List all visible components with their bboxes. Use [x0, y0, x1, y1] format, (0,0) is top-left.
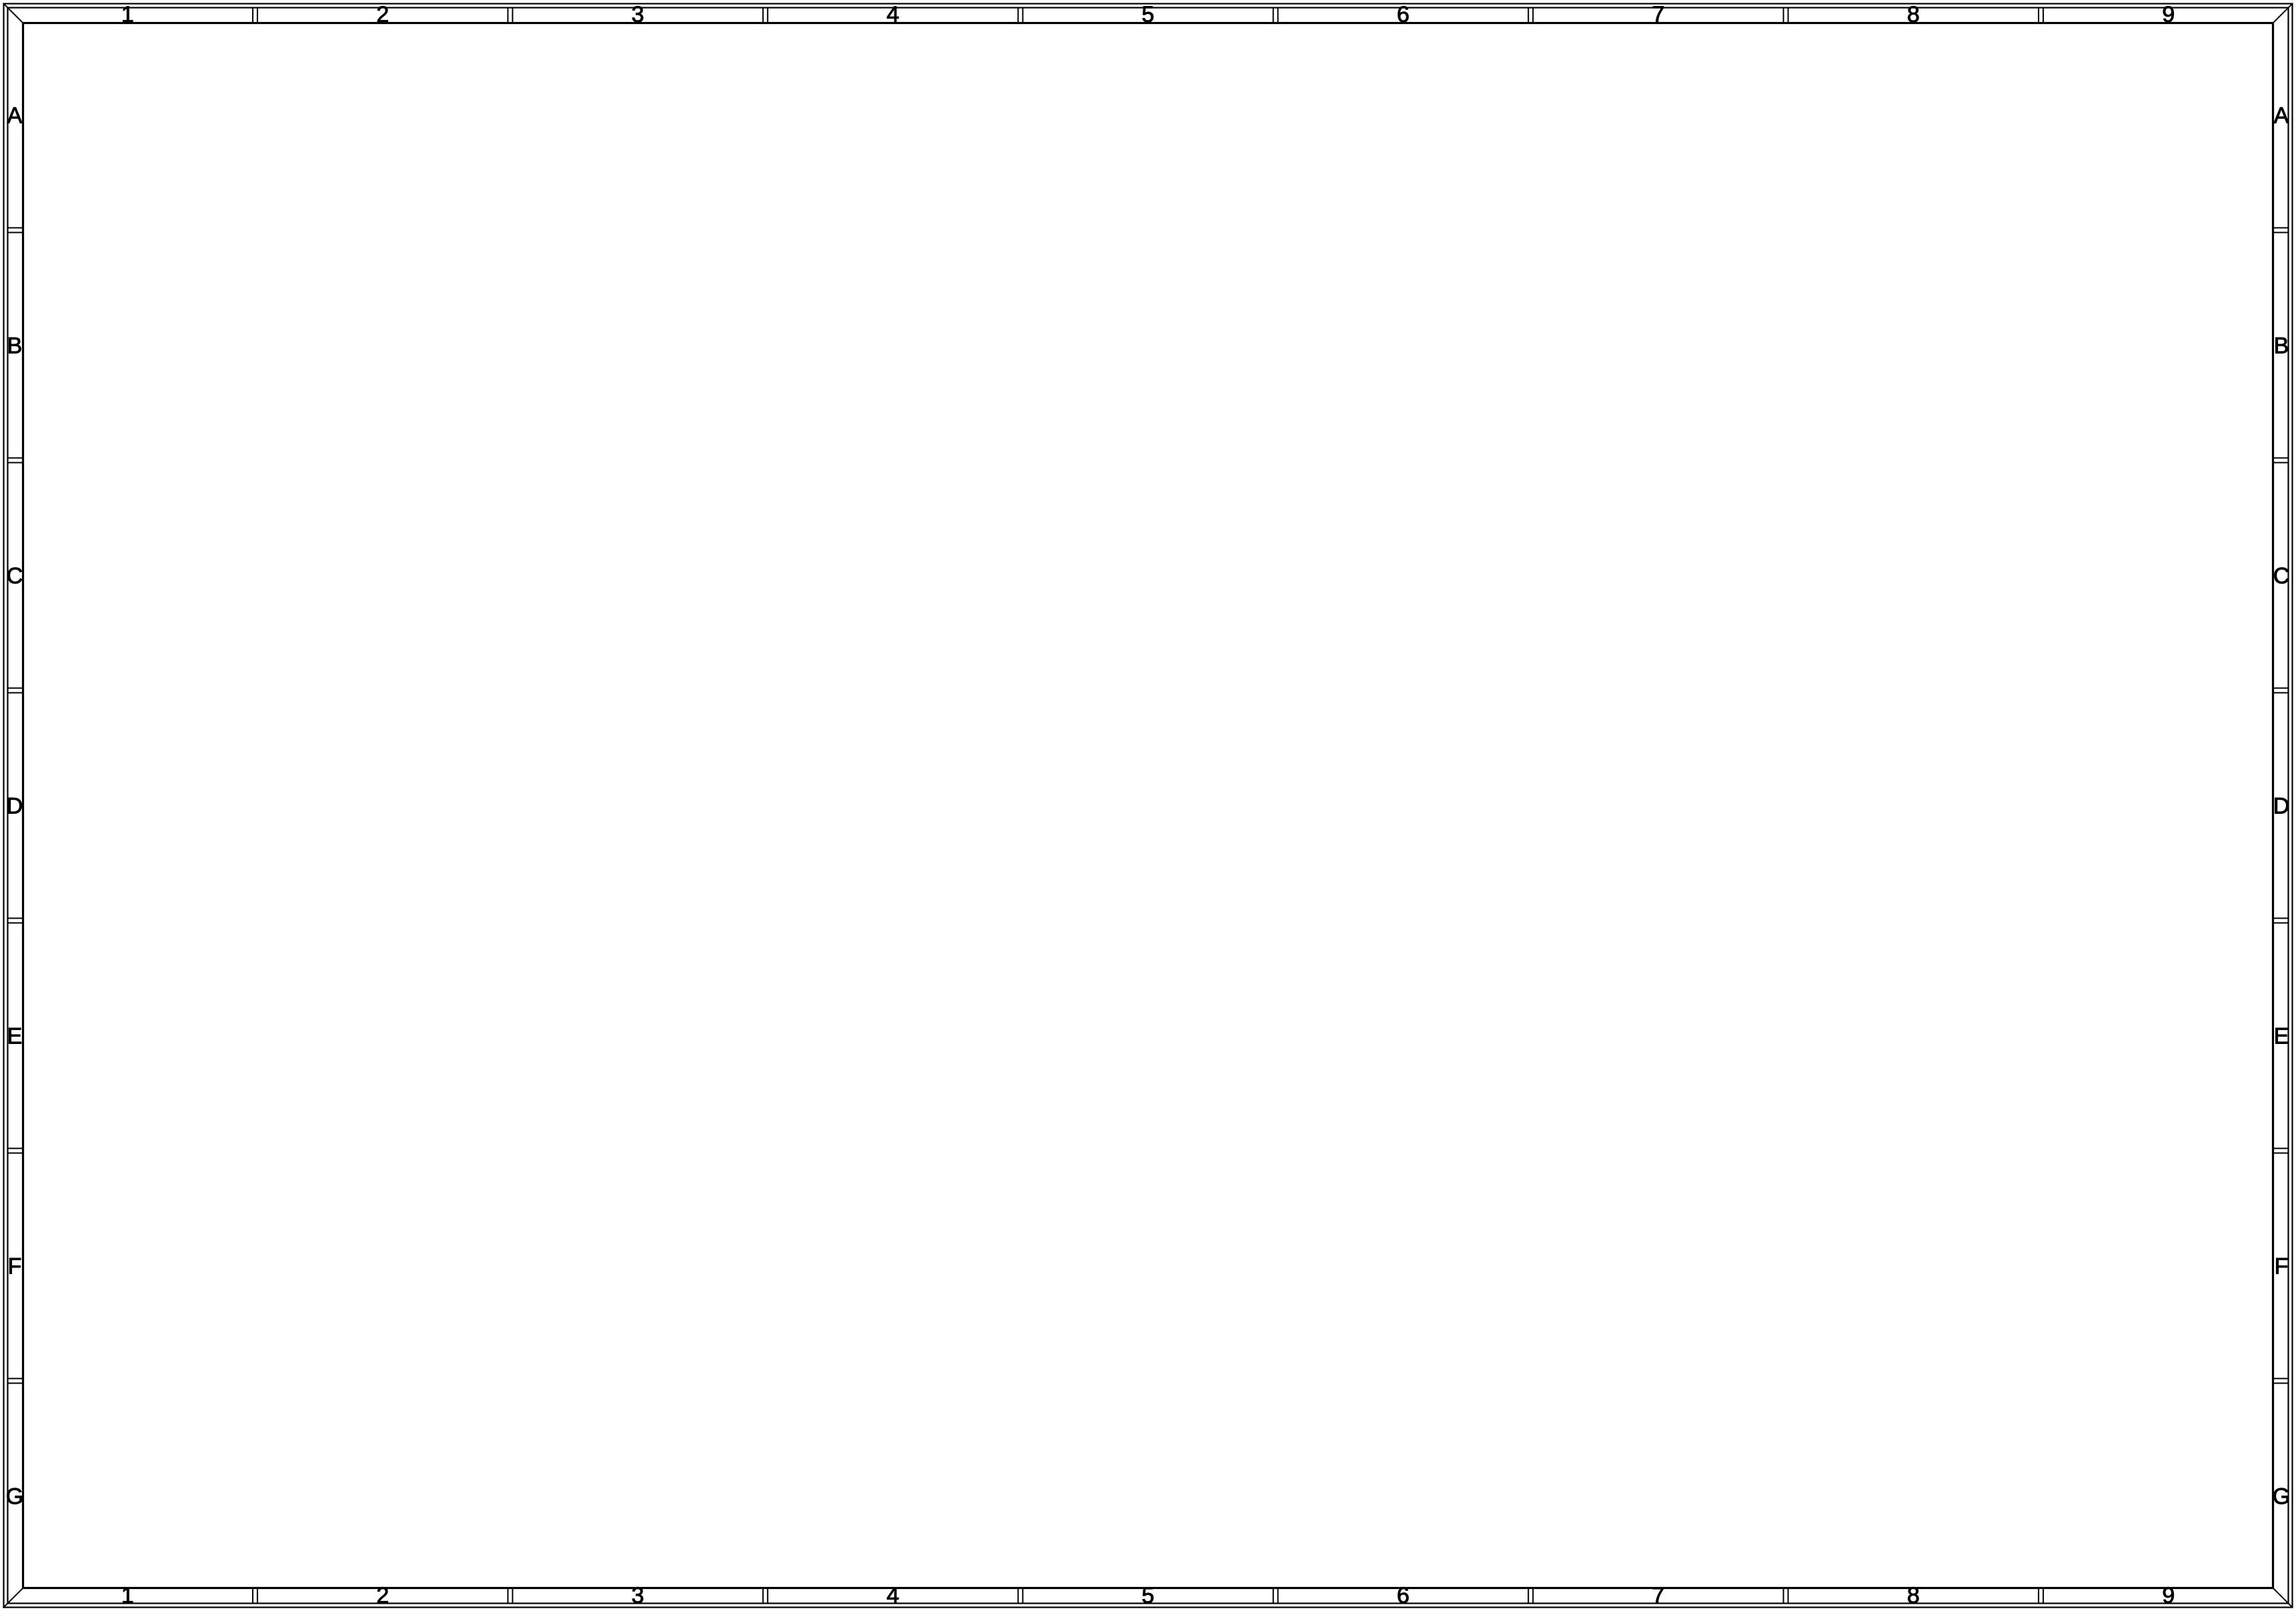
svg-text:2: 2 [376, 1583, 389, 1608]
svg-text:4: 4 [887, 2, 899, 27]
svg-text:8: 8 [1907, 1583, 1920, 1608]
svg-text:5: 5 [1142, 1583, 1155, 1608]
svg-text:6: 6 [1397, 1583, 1409, 1608]
svg-text:F: F [8, 1254, 22, 1279]
svg-text:6: 6 [1397, 2, 1409, 27]
svg-text:A: A [7, 103, 23, 129]
svg-text:E: E [2274, 1024, 2289, 1049]
svg-text:9: 9 [2162, 1583, 2175, 1608]
svg-text:G: G [2273, 1484, 2290, 1510]
svg-text:4: 4 [887, 1583, 899, 1608]
svg-text:3: 3 [632, 1583, 644, 1608]
svg-text:1: 1 [121, 2, 134, 27]
svg-text:8: 8 [1907, 2, 1920, 27]
svg-text:9: 9 [2162, 2, 2175, 27]
svg-text:C: C [7, 564, 23, 589]
svg-text:A: A [2274, 103, 2289, 129]
svg-text:D: D [7, 794, 23, 819]
svg-text:G: G [6, 1484, 23, 1510]
svg-text:B: B [7, 334, 23, 359]
svg-text:F: F [2275, 1254, 2289, 1279]
svg-text:7: 7 [1652, 2, 1664, 27]
svg-text:E: E [7, 1024, 23, 1049]
svg-text:3: 3 [632, 2, 644, 27]
svg-text:2: 2 [376, 2, 389, 27]
svg-text:B: B [2274, 334, 2289, 359]
svg-text:D: D [2273, 794, 2290, 819]
svg-text:7: 7 [1652, 1583, 1664, 1608]
svg-text:1: 1 [121, 1583, 134, 1608]
svg-text:C: C [2273, 564, 2290, 589]
svg-text:5: 5 [1142, 2, 1155, 27]
